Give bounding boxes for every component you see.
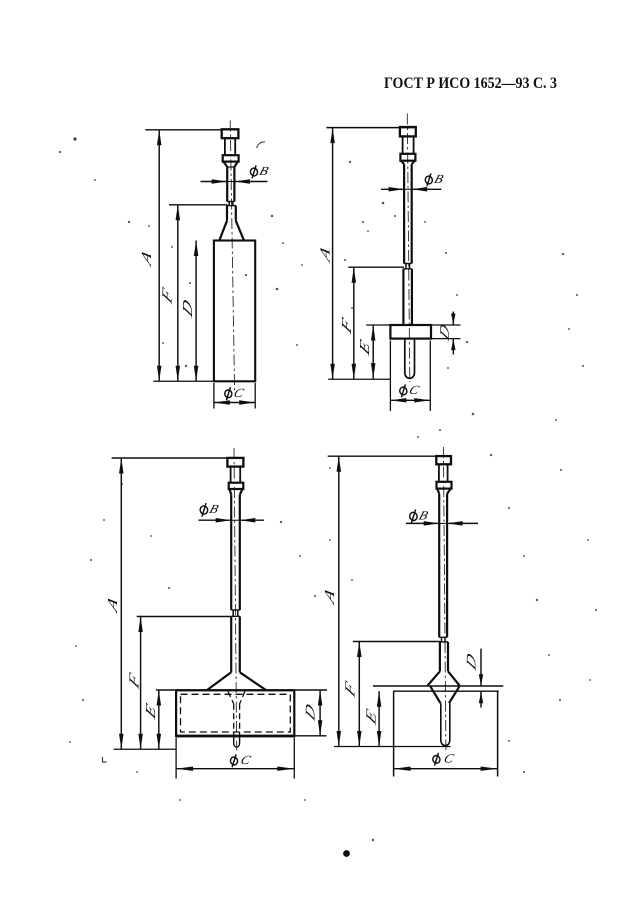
svg-text:C: C [408, 383, 422, 397]
svg-text:D: D [180, 296, 195, 321]
svg-text:D: D [464, 649, 479, 674]
svg-text:F: F [126, 668, 141, 692]
svg-text:D: D [437, 320, 452, 345]
svg-text:E: E [143, 700, 158, 723]
svg-text:A: A [139, 245, 154, 269]
svg-text:B: B [208, 502, 221, 516]
svg-text:ГОСТ Р ИСО 1652—93 С. 3: ГОСТ Р ИСО 1652—93 С. 3 [384, 73, 557, 92]
svg-text:A: A [105, 592, 120, 616]
svg-text:B: B [433, 172, 446, 186]
svg-text:F: F [339, 313, 354, 337]
svg-text:E: E [357, 336, 372, 359]
svg-text:C: C [239, 753, 253, 767]
svg-text:A: A [317, 241, 332, 265]
svg-text:F: F [342, 677, 357, 701]
svg-text:E: E [363, 705, 378, 728]
svg-text:D: D [303, 700, 318, 725]
svg-text:B: B [417, 508, 430, 522]
svg-text:A: A [322, 583, 337, 607]
svg-text:C: C [232, 386, 246, 400]
svg-text:C: C [442, 751, 456, 765]
svg-text:F: F [159, 283, 174, 307]
svg-text:B: B [258, 164, 271, 178]
